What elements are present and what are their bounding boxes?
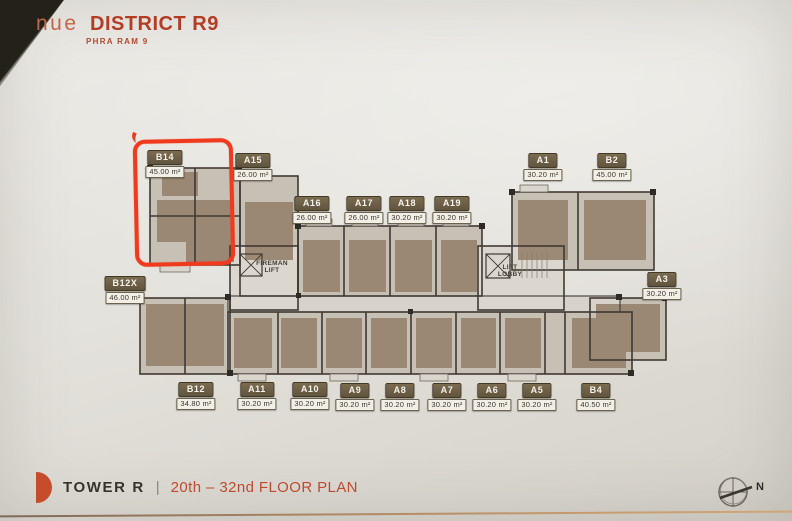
unit-id-label: A5 xyxy=(523,383,552,398)
brand-logo-icon xyxy=(36,472,52,503)
unit-area-label: 30.20 m² xyxy=(427,399,466,411)
unit-area-label: 26.00 m² xyxy=(233,169,272,181)
footer-bar: TOWER R | 20th – 32nd FLOOR PLAN xyxy=(36,472,358,503)
unit-area-label: 30.20 m² xyxy=(642,288,681,300)
unit-id-label: A11 xyxy=(240,382,274,397)
unit-badge-A7: A7 30.20 m² xyxy=(427,383,466,411)
unit-id-label: A7 xyxy=(433,383,462,398)
lift-lobby-label: LIFT LOBBY xyxy=(498,264,522,279)
unit-area-label: 46.00 m² xyxy=(105,292,144,304)
unit-area-label: 30.20 m² xyxy=(335,399,374,411)
unit-badge-A3: A3 30.20 m² xyxy=(642,272,681,300)
unit-area-label: 45.00 m² xyxy=(592,169,631,181)
unit-badge-A19: A19 30.20 m² xyxy=(432,196,471,224)
compass-n-label: N xyxy=(756,481,764,493)
floor-plan-drawing xyxy=(0,0,792,521)
unit-area-label: 30.20 m² xyxy=(432,212,471,224)
fireman-lift-label: FIREMAN LIFT xyxy=(256,260,288,275)
unit-id-label: A6 xyxy=(478,383,507,398)
unit-badge-A8: A8 30.20 m² xyxy=(380,383,419,411)
unit-badge-B12: B12 34.80 m² xyxy=(176,382,215,410)
unit-badge-A11: A11 30.20 m² xyxy=(237,382,276,410)
unit-id-label: A1 xyxy=(529,153,558,168)
unit-id-label: A15 xyxy=(236,153,270,168)
floor-range-label: 20th – 32nd FLOOR PLAN xyxy=(171,479,358,496)
unit-area-label: 34.80 m² xyxy=(176,398,215,410)
unit-area-label: 30.20 m² xyxy=(387,212,426,224)
unit-id-label: A10 xyxy=(293,382,327,397)
unit-id-label: B12X xyxy=(105,276,146,291)
unit-area-label: 40.50 m² xyxy=(576,399,615,411)
unit-id-label: B12 xyxy=(179,382,213,397)
footer-separator: | xyxy=(156,479,160,496)
unit-badge-B4: B4 40.50 m² xyxy=(576,383,615,411)
unit-id-label: A19 xyxy=(435,196,469,211)
unit-badge-A1: A1 30.20 m² xyxy=(523,153,562,181)
brochure-page: nue DISTRICT R9 PHRA RAM 9 xyxy=(0,0,792,521)
unit-badge-A10: A10 30.20 m² xyxy=(290,382,329,410)
unit-id-label: B4 xyxy=(582,383,611,398)
unit-area-label: 30.20 m² xyxy=(517,399,556,411)
unit-badge-A9: A9 30.20 m² xyxy=(335,383,374,411)
unit-area-label: 30.20 m² xyxy=(290,398,329,410)
unit-area-label: 26.00 m² xyxy=(292,212,331,224)
unit-area-label: 30.20 m² xyxy=(472,399,511,411)
unit-badge-B2: B2 45.00 m² xyxy=(592,153,631,181)
unit-id-label: A9 xyxy=(341,383,370,398)
unit-id-label: B2 xyxy=(598,153,627,168)
unit-badge-B12X: B12X 46.00 m² xyxy=(105,276,146,304)
unit-area-label: 26.00 m² xyxy=(344,212,383,224)
unit-id-label: A3 xyxy=(648,272,677,287)
unit-badge-A16: A16 26.00 m² xyxy=(292,196,331,224)
compass-north-icon: N xyxy=(706,466,776,512)
unit-id-label: A16 xyxy=(295,196,329,211)
red-highlight-rectangle xyxy=(133,138,236,267)
unit-area-label: 30.20 m² xyxy=(523,169,562,181)
unit-area-label: 30.20 m² xyxy=(237,398,276,410)
tower-label: TOWER R xyxy=(63,479,145,496)
unit-badge-A15: A15 26.00 m² xyxy=(233,153,272,181)
unit-badge-A5: A5 30.20 m² xyxy=(517,383,556,411)
unit-id-label: A8 xyxy=(386,383,415,398)
unit-area-label: 30.20 m² xyxy=(380,399,419,411)
unit-id-label: A18 xyxy=(390,196,424,211)
unit-badge-A17: A17 26.00 m² xyxy=(344,196,383,224)
unit-badge-A6: A6 30.20 m² xyxy=(472,383,511,411)
unit-id-label: A17 xyxy=(347,196,381,211)
unit-badge-A18: A18 30.20 m² xyxy=(387,196,426,224)
